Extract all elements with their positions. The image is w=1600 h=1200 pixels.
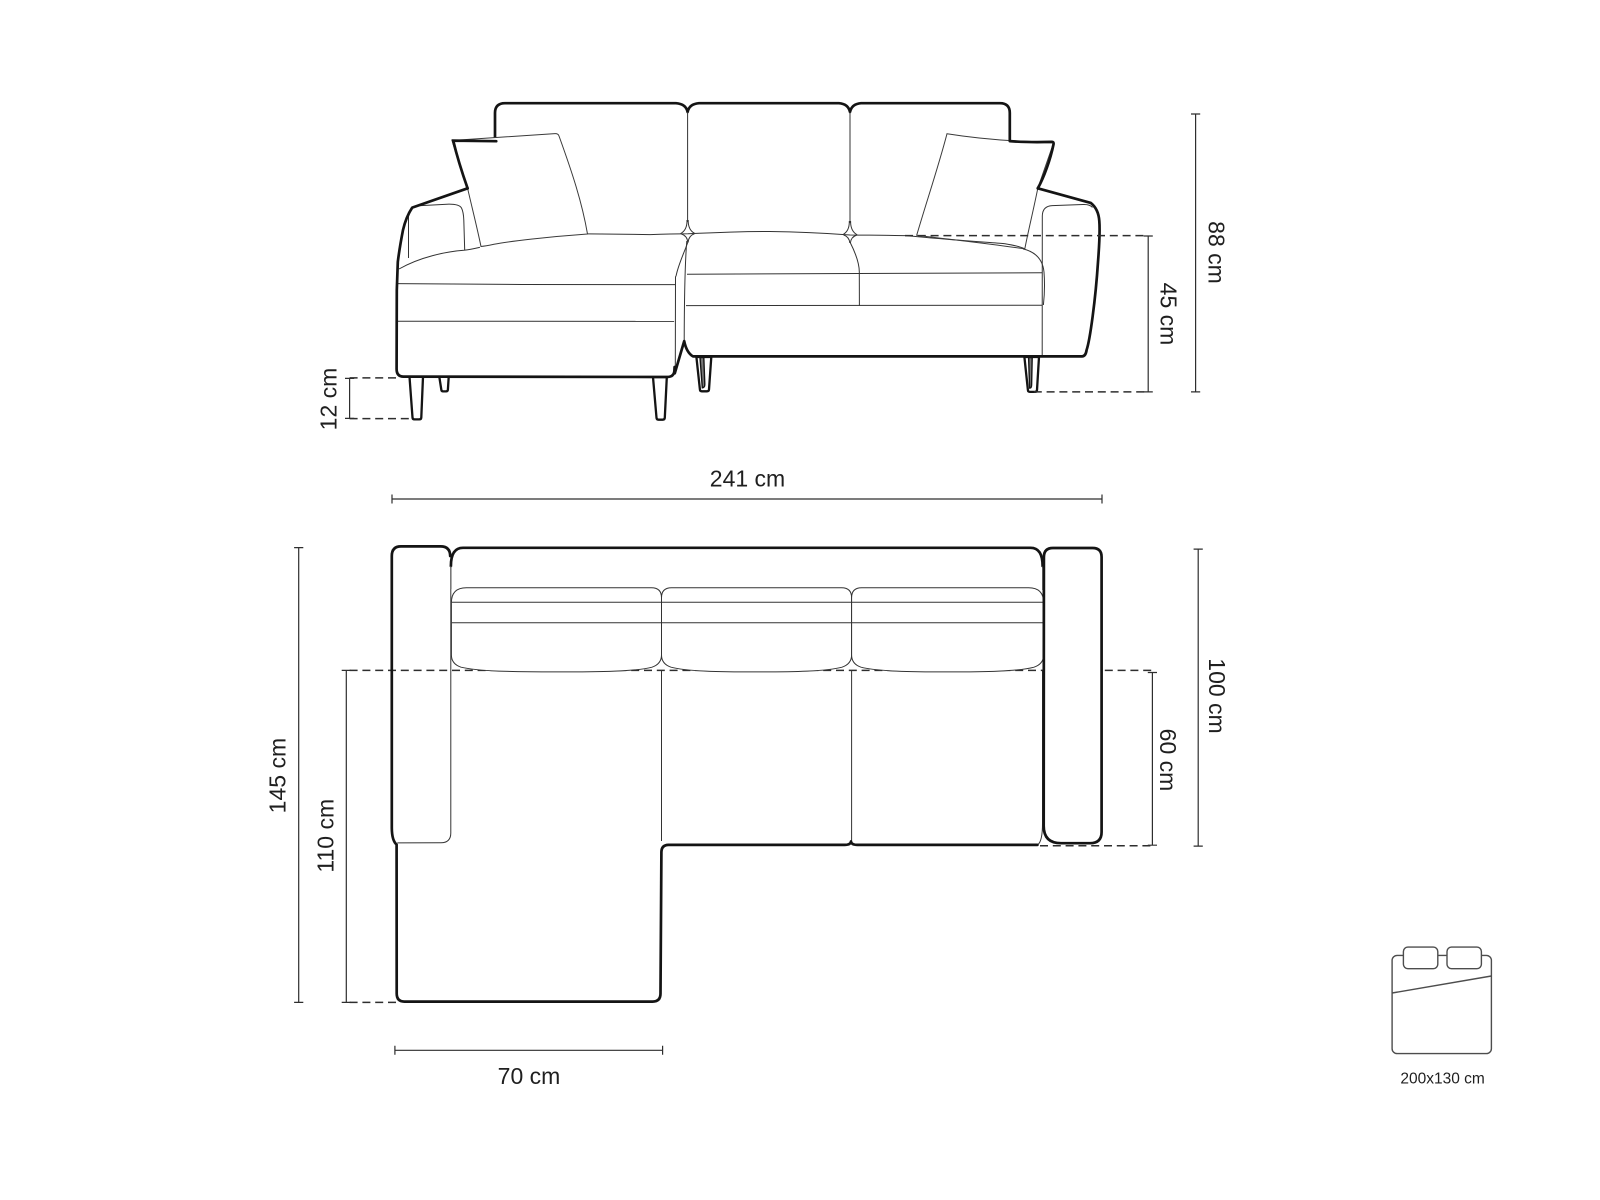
svg-text:110 cm: 110 cm bbox=[313, 799, 339, 873]
svg-text:70 cm: 70 cm bbox=[498, 1063, 561, 1089]
svg-text:60 cm: 60 cm bbox=[1155, 729, 1181, 792]
svg-text:45 cm: 45 cm bbox=[1156, 283, 1182, 346]
svg-text:145 cm: 145 cm bbox=[265, 738, 291, 813]
svg-text:88 cm: 88 cm bbox=[1204, 221, 1230, 284]
svg-text:200x130 cm: 200x130 cm bbox=[1400, 1071, 1484, 1088]
svg-text:12 cm: 12 cm bbox=[316, 368, 342, 431]
svg-text:241 cm: 241 cm bbox=[710, 466, 785, 492]
svg-text:100 cm: 100 cm bbox=[1204, 658, 1230, 733]
